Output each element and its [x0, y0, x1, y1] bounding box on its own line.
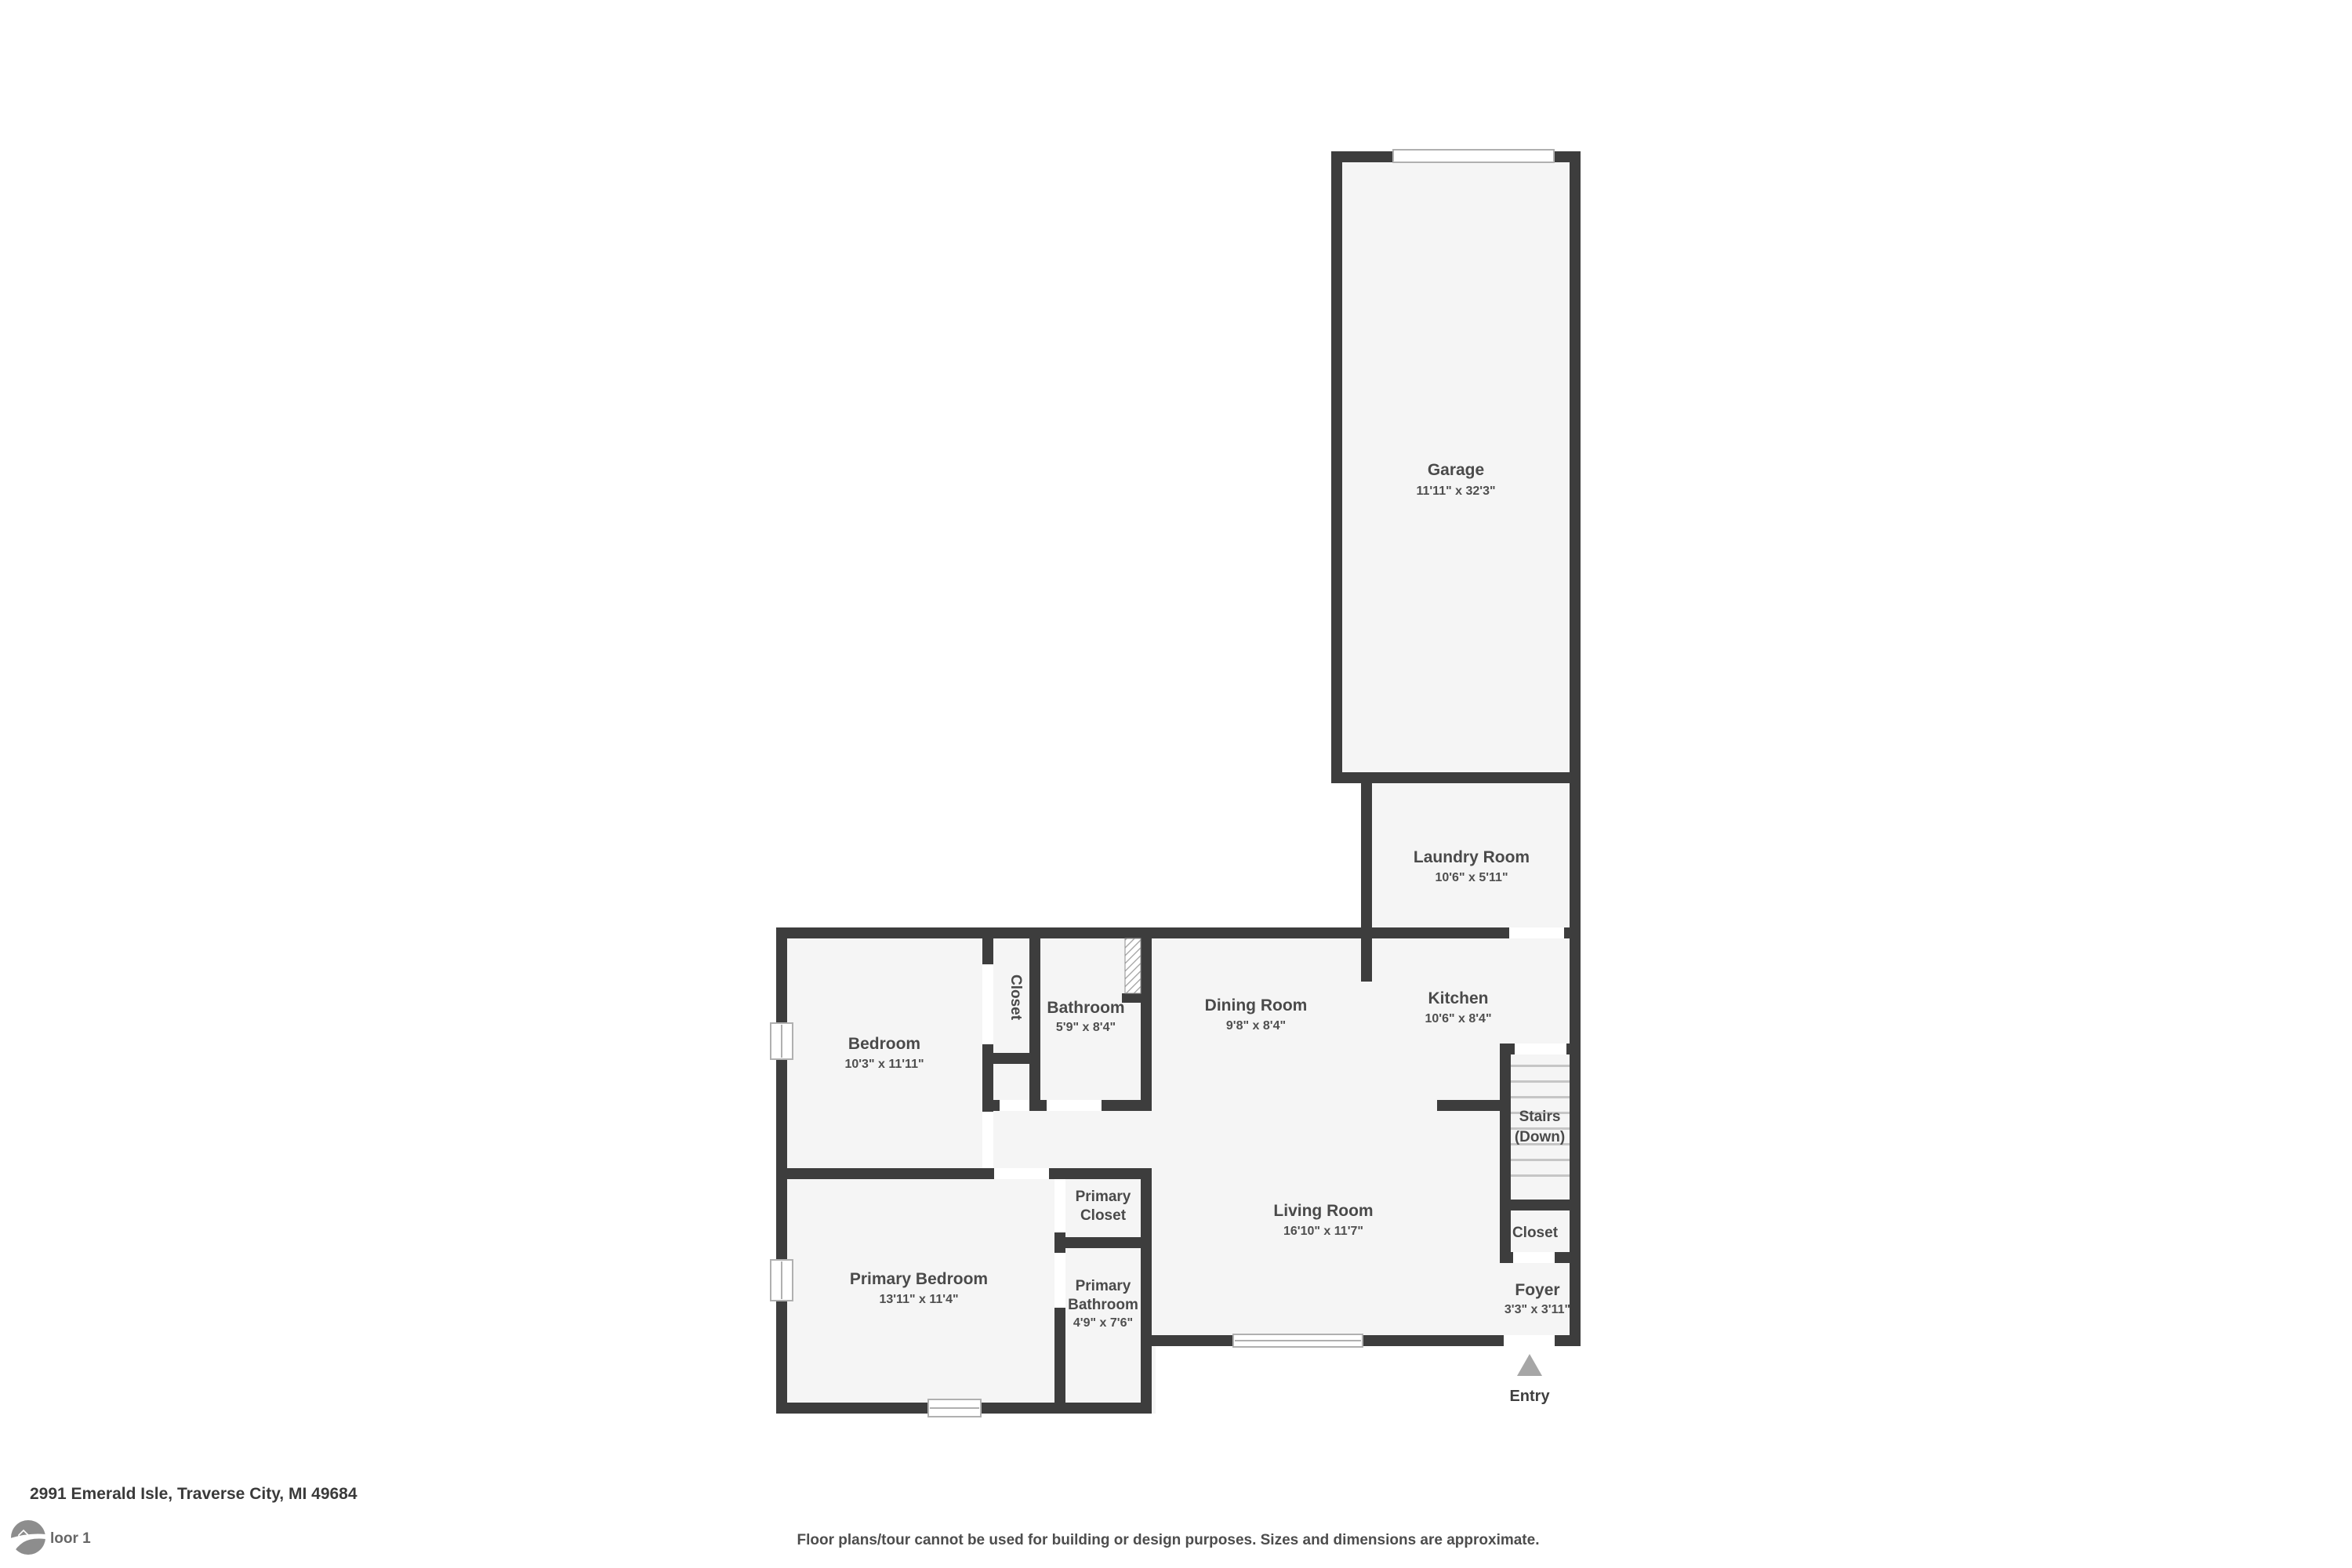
primary-bathroom-door-opening — [1054, 1253, 1065, 1308]
stair-tread — [1511, 1096, 1570, 1098]
room-name: Foyer — [1515, 1281, 1559, 1299]
room-name: Living Room — [1273, 1202, 1373, 1220]
entry-arrow-icon — [1517, 1354, 1542, 1376]
wall-main-top — [776, 927, 1581, 938]
wall-garage-left — [1331, 151, 1342, 783]
wall-stairs-closet-divider — [1500, 1200, 1581, 1210]
room-name: Primary Bedroom — [850, 1270, 988, 1288]
room-dims: 4'9" x 7'6" — [1073, 1316, 1133, 1330]
bedroom-closet-door-opening — [982, 964, 993, 1044]
wall-primary-closet-top — [1049, 1168, 1152, 1179]
room-dims: 9'8" x 8'4" — [1226, 1019, 1286, 1033]
address-text: 2991 Emerald Isle, Traverse City, MI 496… — [30, 1485, 358, 1503]
room-name-line2: (Down) — [1515, 1129, 1565, 1145]
room-dims: 3'3" x 3'11" — [1504, 1303, 1570, 1316]
room-label-primary-bathroom: Primary Bathroom 4'9" x 7'6" — [1068, 1278, 1138, 1330]
wall-bath-bottom-a — [993, 1100, 1000, 1111]
bedroom-window — [771, 1023, 793, 1059]
wall-primary-column-right — [1141, 1168, 1152, 1414]
garage-door — [1393, 150, 1554, 162]
entry-label: Entry — [1509, 1388, 1550, 1405]
entry-marker: Entry — [1509, 1354, 1550, 1405]
disclaimer-text: Floor plans/tour cannot be used for buil… — [797, 1532, 1540, 1548]
wall-garage-laundry — [1331, 772, 1581, 783]
hall-passage-opening — [1000, 1100, 1029, 1111]
room-name: Bathroom — [1047, 999, 1124, 1017]
room-name-line1: Primary — [1076, 1278, 1131, 1294]
wall-closet-bathroom — [1029, 938, 1040, 1111]
floor-plan: Garage 11'11" x 32'3" Laundry Room 10'6"… — [0, 0, 2352, 1568]
bedroom-door-opening — [982, 1112, 993, 1168]
room-label-hall-closet: Closet — [1007, 975, 1024, 1021]
wall-primary-right-b — [1054, 1308, 1065, 1403]
room-dims: 13'11" x 11'4" — [879, 1293, 958, 1306]
stair-tread — [1511, 1174, 1570, 1177]
primary-closet-door-opening — [1054, 1179, 1065, 1232]
wall-primary-closet-bath-divider — [1054, 1237, 1152, 1248]
stair-tread — [1511, 1159, 1570, 1161]
room-name-line2: Bathroom — [1068, 1297, 1138, 1313]
wall-bedroom-primary-divider — [776, 1168, 994, 1179]
entry-closet-door-opening — [1513, 1252, 1555, 1263]
room-dims: 5'9" x 8'4" — [1056, 1021, 1116, 1034]
room-name-line1: Primary — [1076, 1189, 1131, 1205]
entry-door-opening — [1504, 1335, 1555, 1346]
wall-shower-cap — [1122, 993, 1144, 1003]
wall-bedroom-right-a — [982, 938, 993, 964]
room-dims: 11'11" x 32'3" — [1416, 485, 1495, 498]
wall-closet-bottom — [982, 1053, 1040, 1064]
primary-bedroom-window — [771, 1260, 793, 1301]
room-label-bathroom: Bathroom 5'9" x 8'4" — [1047, 999, 1124, 1034]
stair-tread — [1511, 1065, 1570, 1067]
room-label-entry-closet: Closet — [1512, 1225, 1559, 1241]
wall-stairs-left — [1500, 1044, 1511, 1263]
room-dims: 10'6" x 8'4" — [1425, 1012, 1491, 1025]
wall-bathroom-right — [1141, 938, 1152, 1111]
floor-label: loor 1 — [50, 1530, 91, 1547]
living-room-window — [1233, 1334, 1363, 1347]
shower-hatch — [1125, 938, 1141, 993]
room-name: Closet — [1512, 1225, 1559, 1241]
room-dims: 10'6" x 5'11" — [1435, 871, 1508, 884]
primary-bottom-window — [928, 1399, 981, 1417]
brand-logo-icon — [8, 1520, 45, 1555]
room-name: Garage — [1428, 461, 1484, 479]
room-name: Kitchen — [1428, 989, 1488, 1007]
room-name-line2: Closet — [1080, 1207, 1127, 1224]
stairs-door-opening — [1515, 1044, 1566, 1054]
room-name: Dining Room — [1205, 996, 1308, 1014]
bathroom-door-opening — [1047, 1100, 1102, 1111]
room-dims: 10'3" x 11'11" — [844, 1058, 924, 1071]
wall-laundry-left — [1361, 783, 1372, 938]
laundry-door-opening — [1509, 927, 1564, 938]
room-name: Closet — [1007, 975, 1024, 1021]
room-dims: 16'10" x 11'7" — [1283, 1225, 1363, 1238]
primary-bedroom-door-opening — [994, 1168, 1049, 1179]
wall-kitchen-dining-stub — [1361, 938, 1372, 982]
room-name: Bedroom — [848, 1035, 920, 1053]
stair-tread — [1511, 1080, 1570, 1083]
wall-bath-bottom-b — [1029, 1100, 1047, 1111]
wall-kitchen-living-stub — [1437, 1100, 1500, 1111]
room-name-line1: Stairs — [1519, 1109, 1561, 1125]
wall-right-exterior — [1570, 151, 1581, 1346]
room-name: Laundry Room — [1414, 848, 1530, 866]
